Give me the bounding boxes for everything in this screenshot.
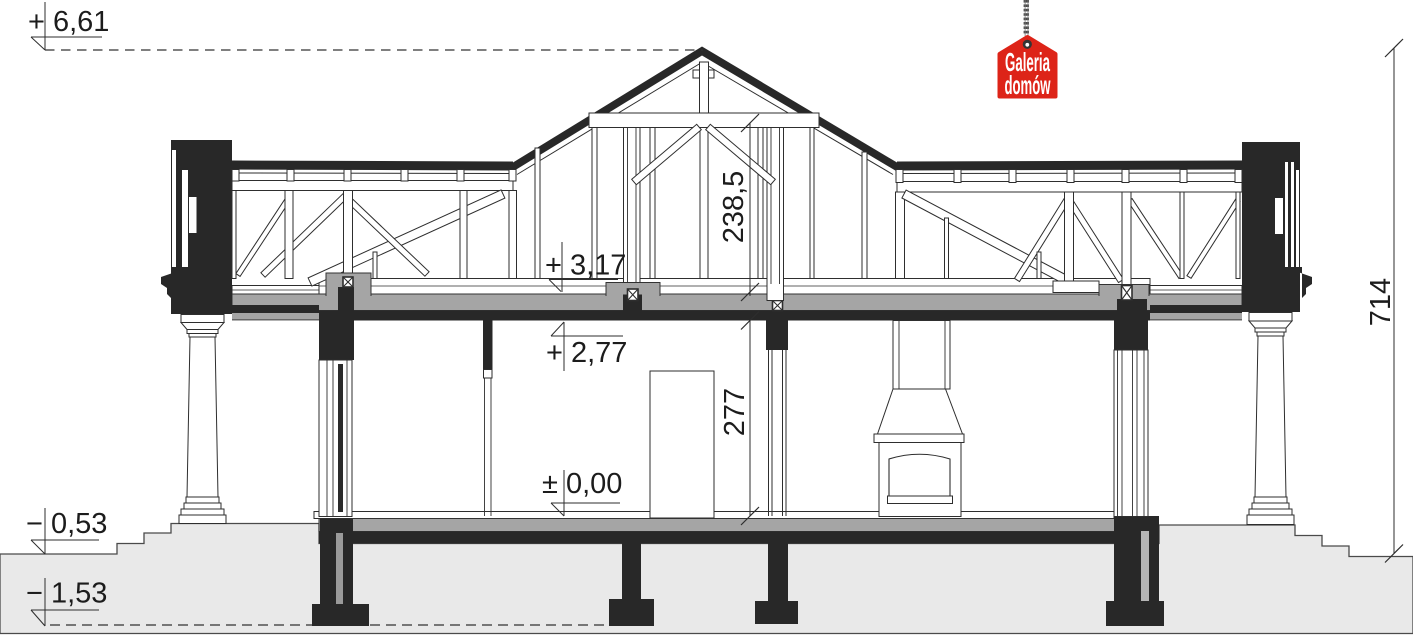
svg-text:domów: domów (1005, 70, 1051, 100)
svg-text:+ 2,77: + 2,77 (546, 337, 627, 369)
svg-text:277: 277 (719, 388, 751, 436)
svg-text:± 0,00: ± 0,00 (542, 468, 622, 500)
svg-text:238,5: 238,5 (718, 171, 750, 244)
svg-text:+ 6,61: + 6,61 (28, 6, 109, 38)
svg-text:− 0,53: − 0,53 (26, 508, 107, 540)
svg-text:714: 714 (1365, 278, 1397, 326)
svg-text:− 1,53: − 1,53 (26, 578, 107, 610)
svg-text:+ 3,17: + 3,17 (545, 250, 626, 282)
